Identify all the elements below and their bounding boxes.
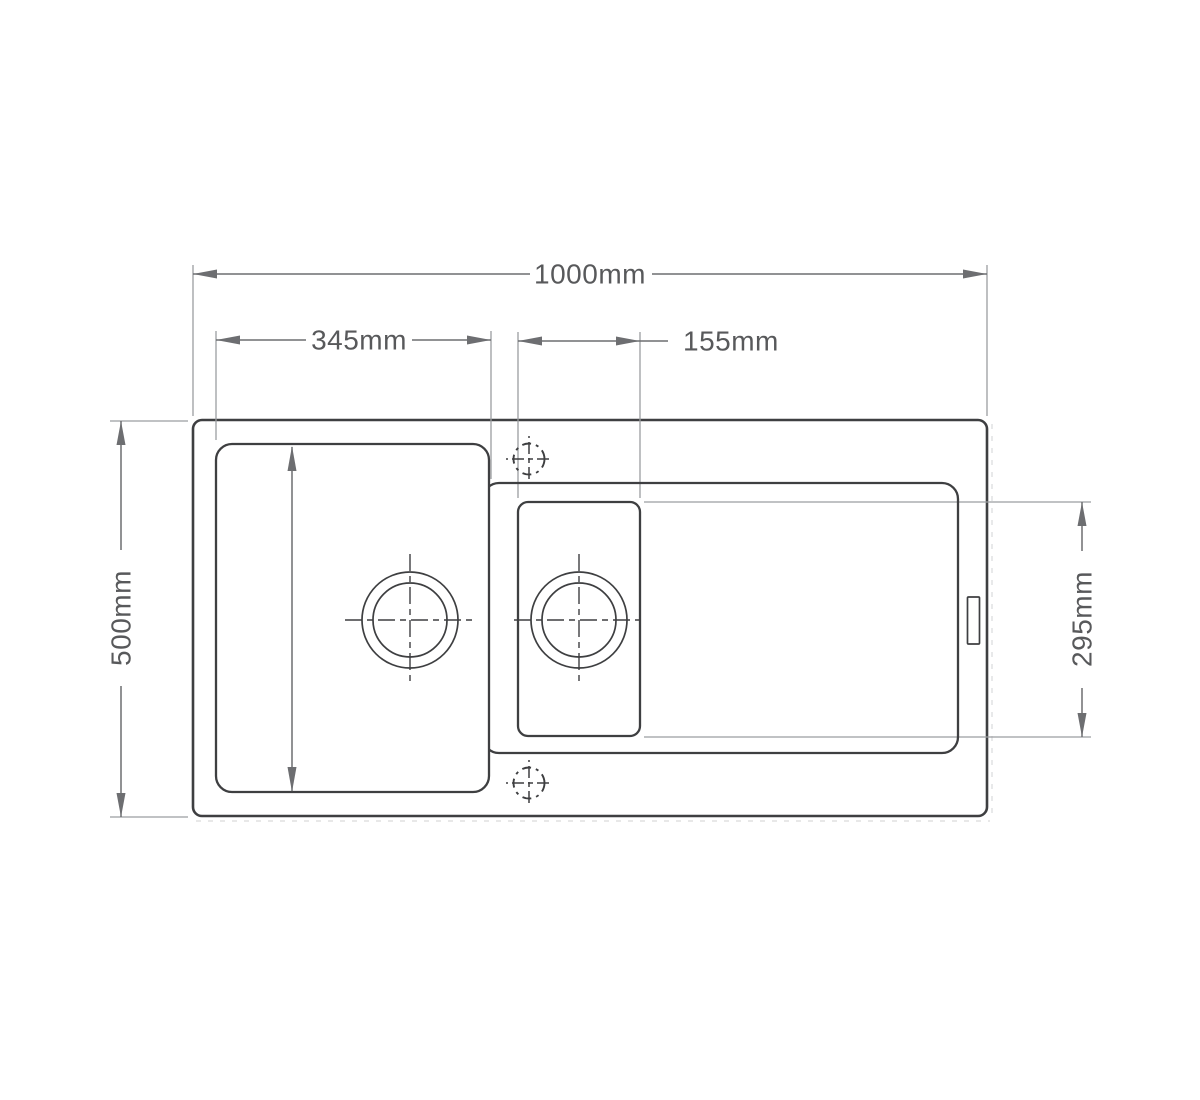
arrow-right-icon [616,337,640,346]
arrow-up-icon [1078,502,1087,526]
half-bowl [518,502,640,736]
dimension-label-half-bowl-width: 155mm [683,326,779,357]
dimension-overall-depth: 500mm [106,421,189,817]
arrow-right-icon [963,270,987,279]
arrow-left-icon [518,337,542,346]
arrow-down-icon [117,793,126,817]
technical-drawing-canvas: 1000mm 345mm 155mm [0,0,1200,1100]
arrow-up-icon [117,421,126,445]
dimension-label-overall-depth: 500mm [106,570,137,666]
sink-dimension-drawing: 1000mm 345mm 155mm [0,0,1200,1100]
arrow-left-icon [216,336,240,345]
dimension-label-half-bowl-depth: 295mm [1067,571,1098,667]
arrow-down-icon [1078,713,1087,737]
dimension-label-overall-width: 1000mm [534,259,646,290]
arrow-right-icon [467,336,491,345]
dimension-label-main-bowl-width: 345mm [311,325,407,356]
main-bowl [216,444,489,792]
arrow-left-icon [193,270,217,279]
overflow-slot [968,597,980,644]
